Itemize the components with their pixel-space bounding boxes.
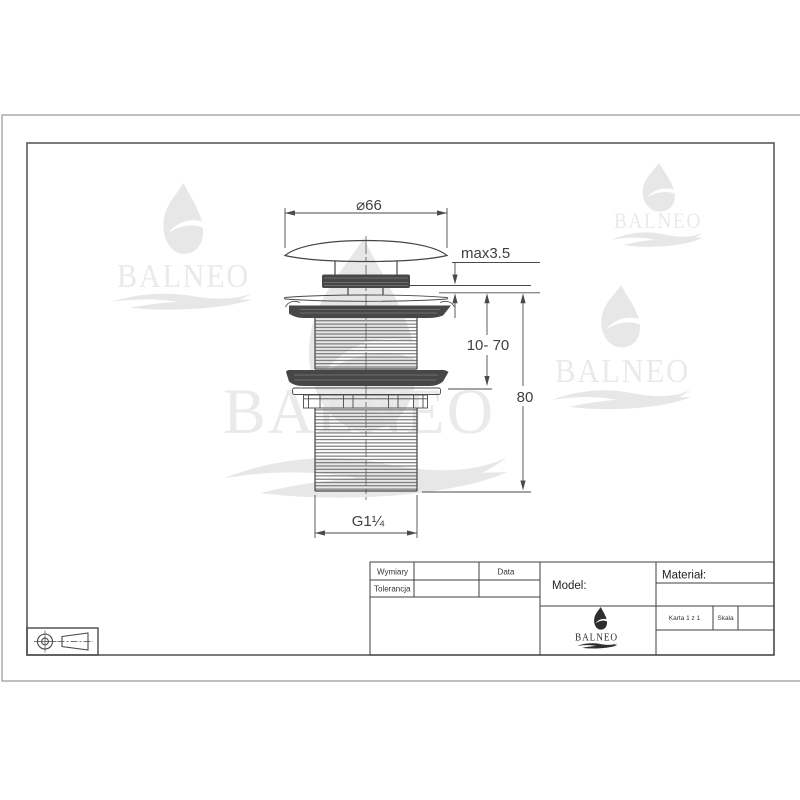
wave-icon	[112, 293, 252, 309]
technical-drawing-sheet: BALNEO BALNEO BALNEO BALNEO	[0, 0, 800, 800]
material-label: Materiał:	[662, 570, 706, 582]
flame-icon	[163, 183, 203, 254]
dim-range-label: 10- 70	[467, 337, 510, 354]
brand-logo-text: BALNEO	[575, 633, 618, 644]
watermark-text: BALNEO	[555, 353, 690, 390]
watermark-right-middle: BALNEO	[552, 285, 691, 409]
dim-range: 10- 70	[448, 293, 509, 389]
dim-thread-label: G1¼	[352, 513, 385, 530]
page: { "sheet": { "brand": "BALNEO", "dims": …	[0, 0, 800, 800]
dim-total-label: 80	[517, 389, 534, 406]
karta-label: Karta 1 z 1	[669, 615, 701, 622]
flame-icon	[643, 163, 675, 212]
dim-max-label: max3.5	[461, 245, 510, 262]
lower-flange	[286, 370, 449, 386]
projection-symbol-box	[27, 628, 98, 655]
watermark-top-right: BALNEO	[612, 163, 703, 247]
model-label: Model:	[552, 580, 587, 592]
projection-circle-icon	[34, 631, 57, 653]
flame-icon	[601, 285, 640, 347]
upper-thread	[315, 318, 417, 369]
data-label: Data	[498, 568, 515, 577]
watermark-text: BALNEO	[117, 258, 250, 295]
wymiary-label: Wymiary	[377, 568, 408, 577]
skala-label: Skala	[717, 615, 734, 622]
dim-diameter-label: ⌀66	[356, 197, 382, 214]
watermark-top-left: BALNEO	[112, 183, 252, 310]
tolerancja-label: Tolerancja	[374, 585, 411, 594]
projection-cone-icon	[58, 633, 94, 650]
title-block: Wymiary Tolerancja Data Model: Materiał:…	[370, 562, 774, 655]
lower-thread	[315, 408, 417, 491]
brand-wave-icon	[577, 643, 618, 648]
title-block-logo: BALNEO	[575, 607, 618, 648]
wave-icon	[552, 390, 691, 409]
brand-flame-icon	[594, 607, 607, 630]
wave-icon	[612, 232, 703, 247]
watermark-text: BALNEO	[614, 208, 702, 233]
knurled-collar	[322, 275, 410, 289]
dim-thread: G1¼	[315, 495, 417, 538]
